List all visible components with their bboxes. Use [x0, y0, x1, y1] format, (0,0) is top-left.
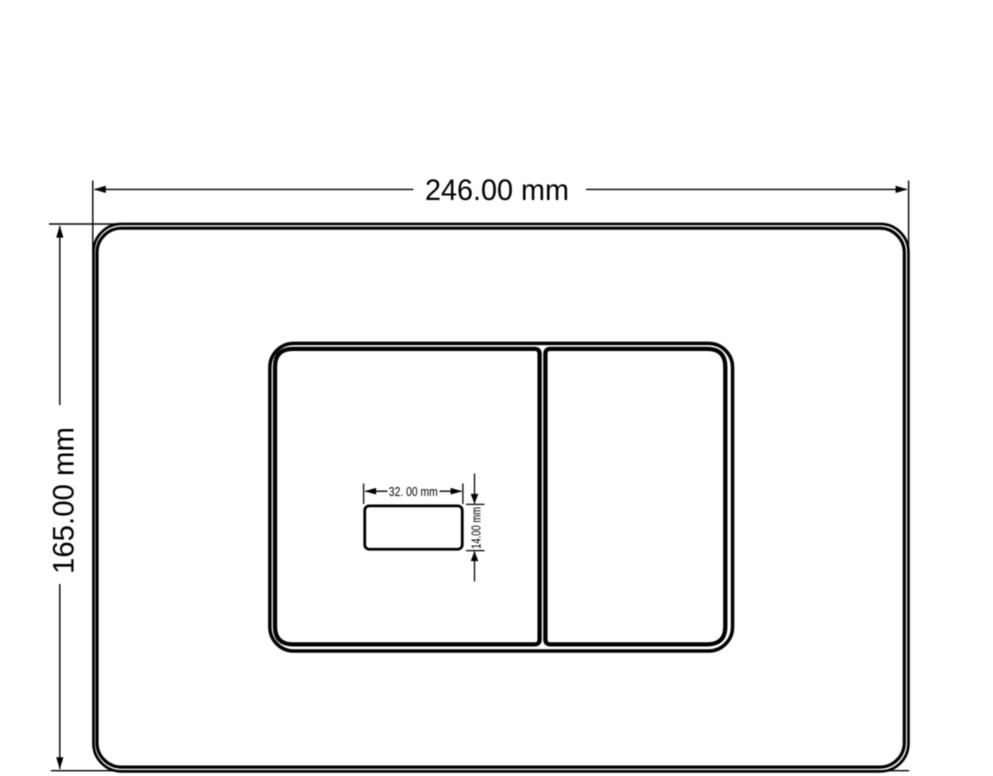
- svg-text:246.00 mm: 246.00 mm: [425, 174, 569, 207]
- svg-text:14.00 mm: 14.00 mm: [468, 507, 483, 549]
- svg-text:165.00 mm: 165.00 mm: [47, 427, 80, 574]
- svg-text:32. 00 mm: 32. 00 mm: [389, 484, 438, 499]
